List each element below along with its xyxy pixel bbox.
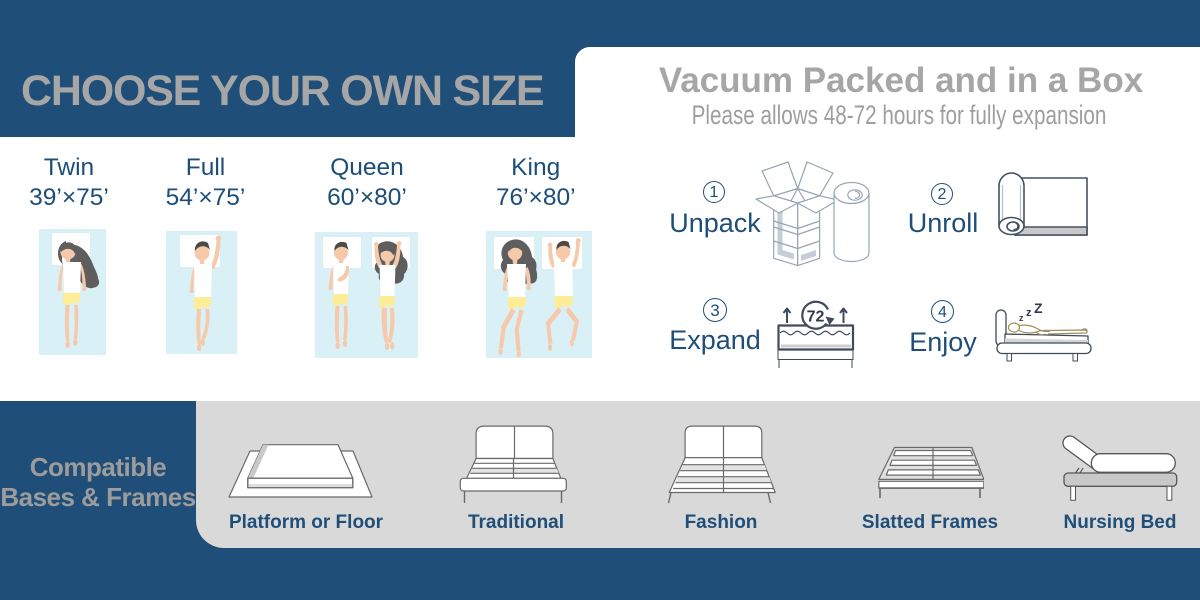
svg-text:z: z <box>1026 307 1032 319</box>
svg-text:z: z <box>1019 313 1024 323</box>
svg-text:Z: Z <box>1034 300 1043 316</box>
svg-text:72: 72 <box>807 309 825 326</box>
